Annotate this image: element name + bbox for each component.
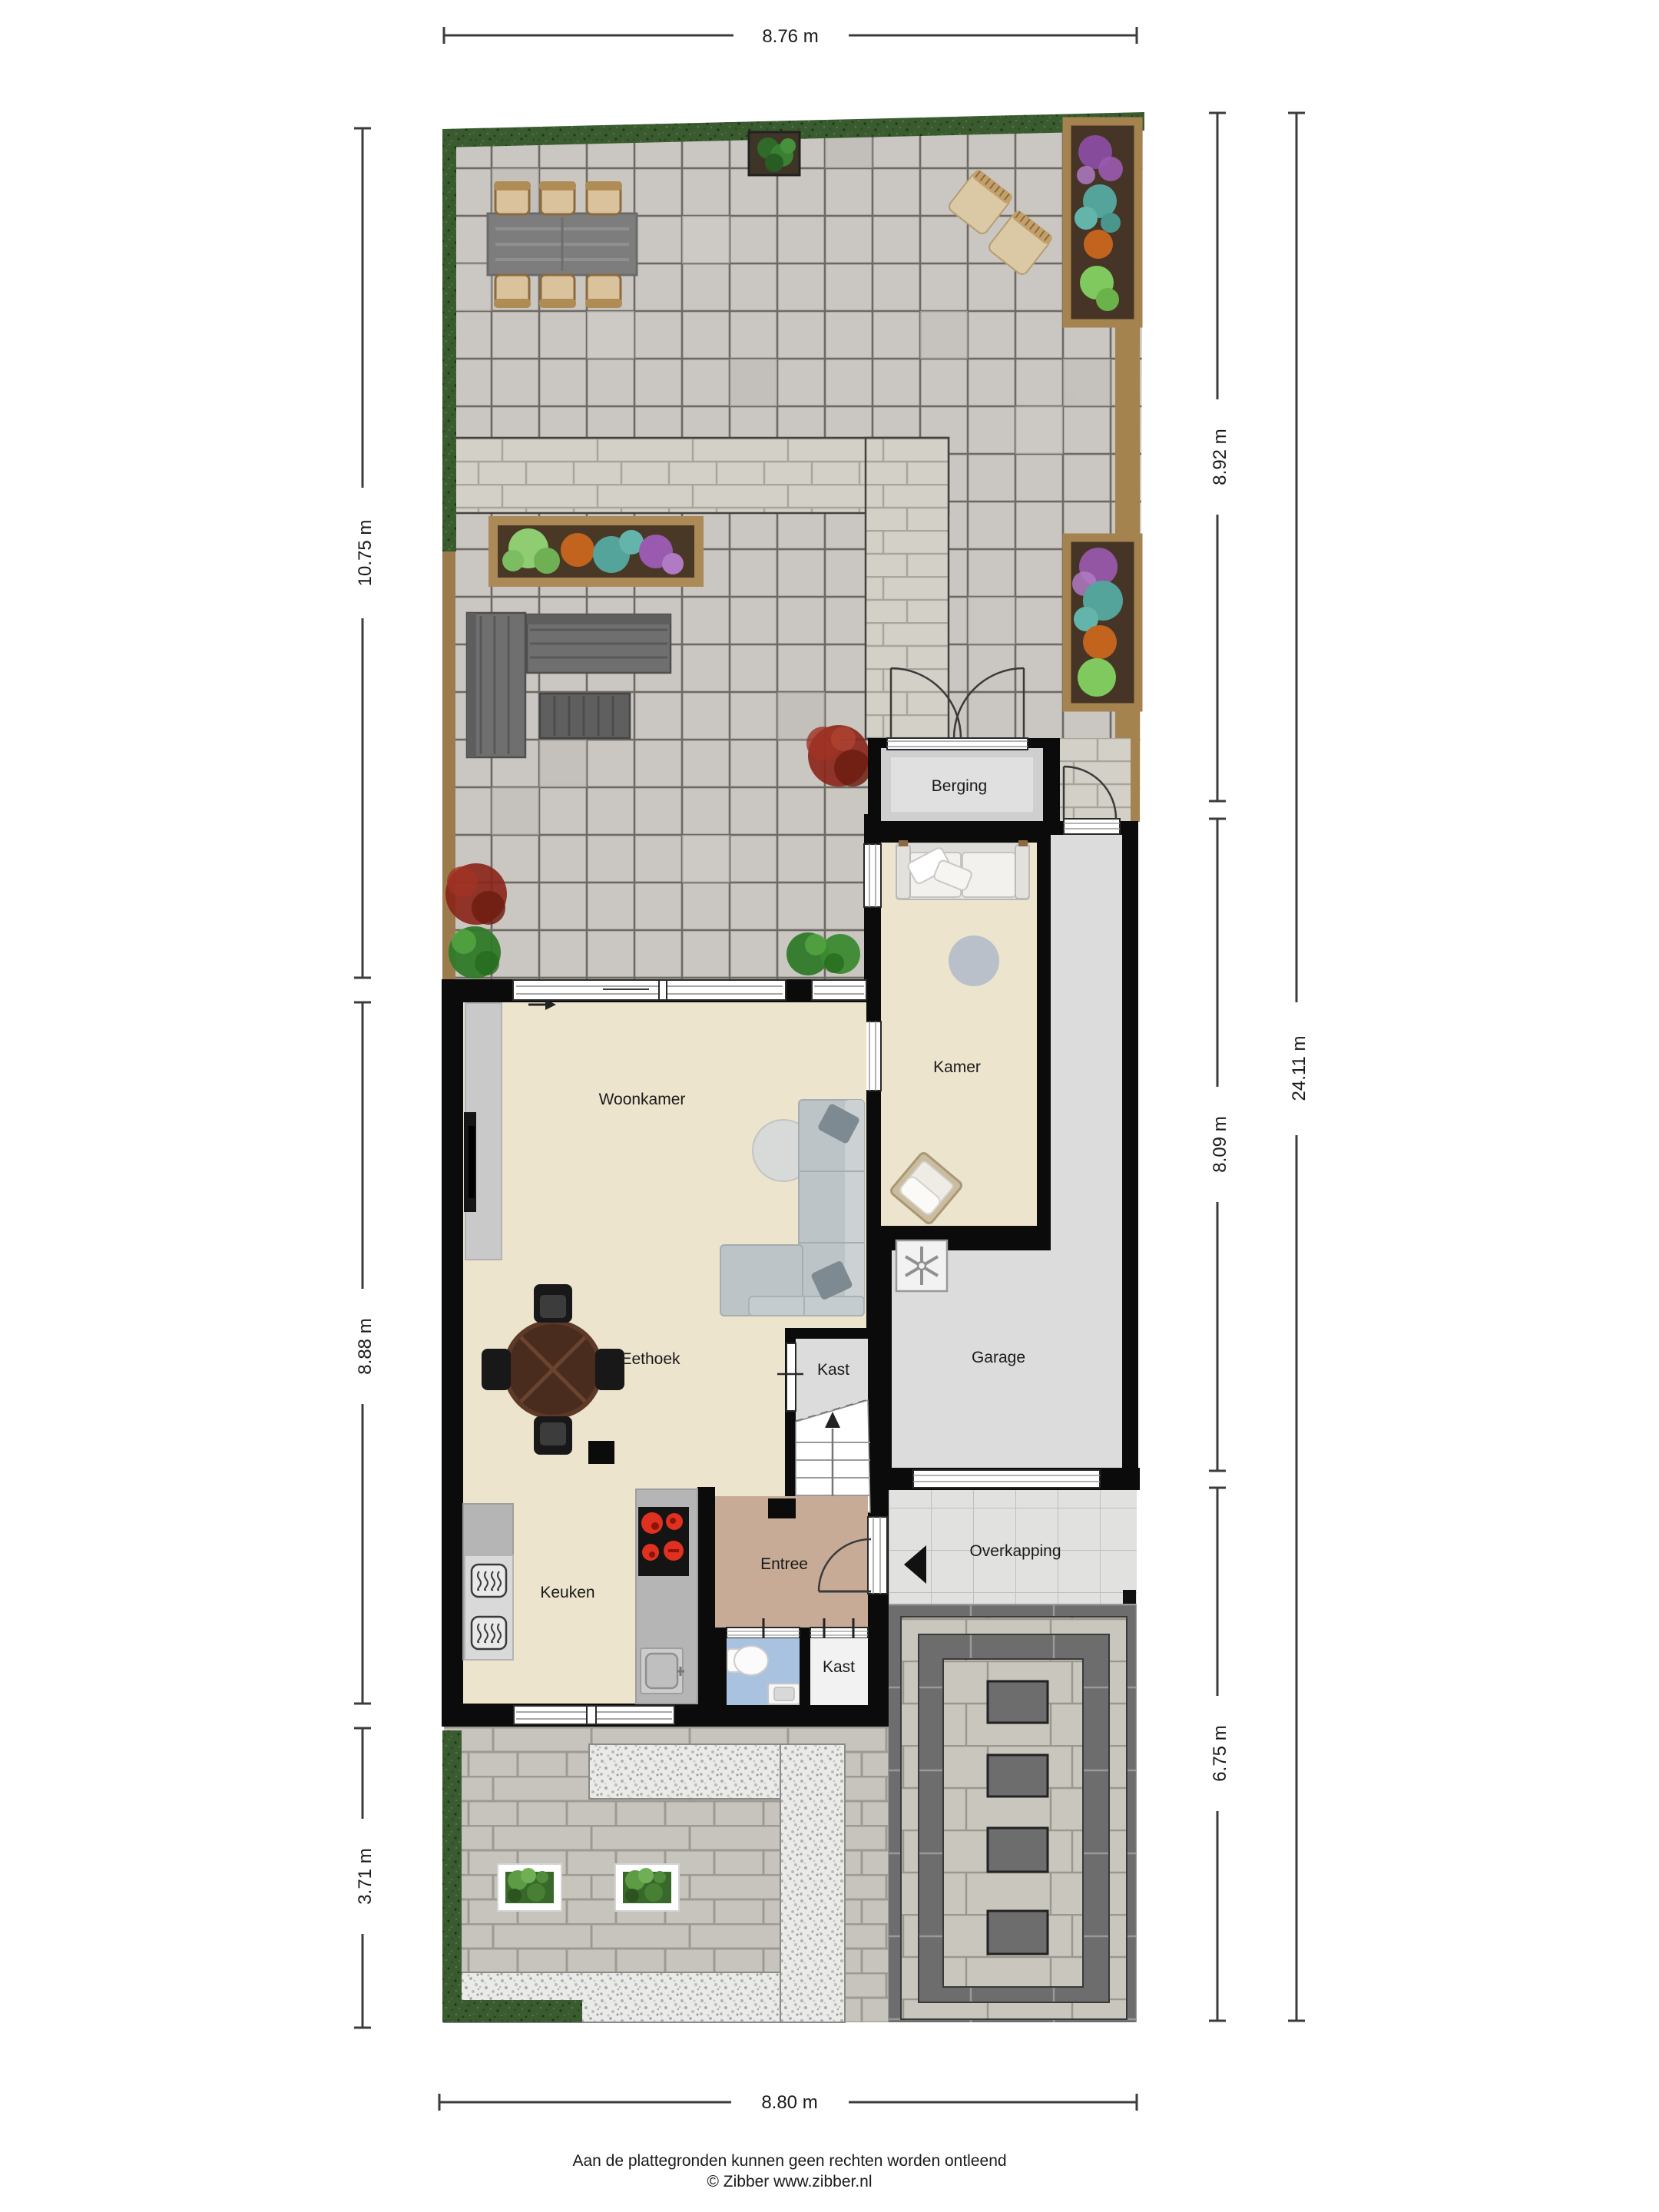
svg-text:Kamer: Kamer (933, 1058, 981, 1076)
svg-text:10.75 m: 10.75 m (355, 520, 376, 587)
svg-text:© Zibber www.zibber.nl: © Zibber www.zibber.nl (707, 2173, 872, 2190)
svg-text:8.76 m: 8.76 m (762, 26, 818, 47)
svg-text:8.88 m: 8.88 m (355, 1318, 376, 1374)
svg-text:Aan de plattegronden kunnen ge: Aan de plattegronden kunnen geen rechten… (572, 2152, 1006, 2170)
svg-text:24.11 m: 24.11 m (1289, 1036, 1310, 1101)
svg-text:Eethoek: Eethoek (621, 1350, 680, 1368)
svg-text:8.80 m: 8.80 m (761, 2092, 817, 2113)
svg-text:Entree: Entree (760, 1555, 808, 1573)
svg-text:6.75 m: 6.75 m (1210, 1725, 1230, 1781)
svg-text:3.71 m: 3.71 m (355, 1848, 376, 1904)
svg-text:Woonkamer: Woonkamer (599, 1091, 686, 1108)
svg-text:Kast: Kast (823, 1658, 855, 1676)
svg-text:Kast: Kast (817, 1361, 849, 1379)
svg-text:Keuken: Keuken (540, 1584, 594, 1601)
svg-text:Berging: Berging (932, 777, 987, 795)
svg-text:8.92 m: 8.92 m (1210, 429, 1230, 485)
svg-text:Garage: Garage (972, 1349, 1025, 1366)
svg-text:Overkapping: Overkapping (969, 1542, 1061, 1560)
svg-text:8.09 m: 8.09 m (1210, 1116, 1230, 1172)
